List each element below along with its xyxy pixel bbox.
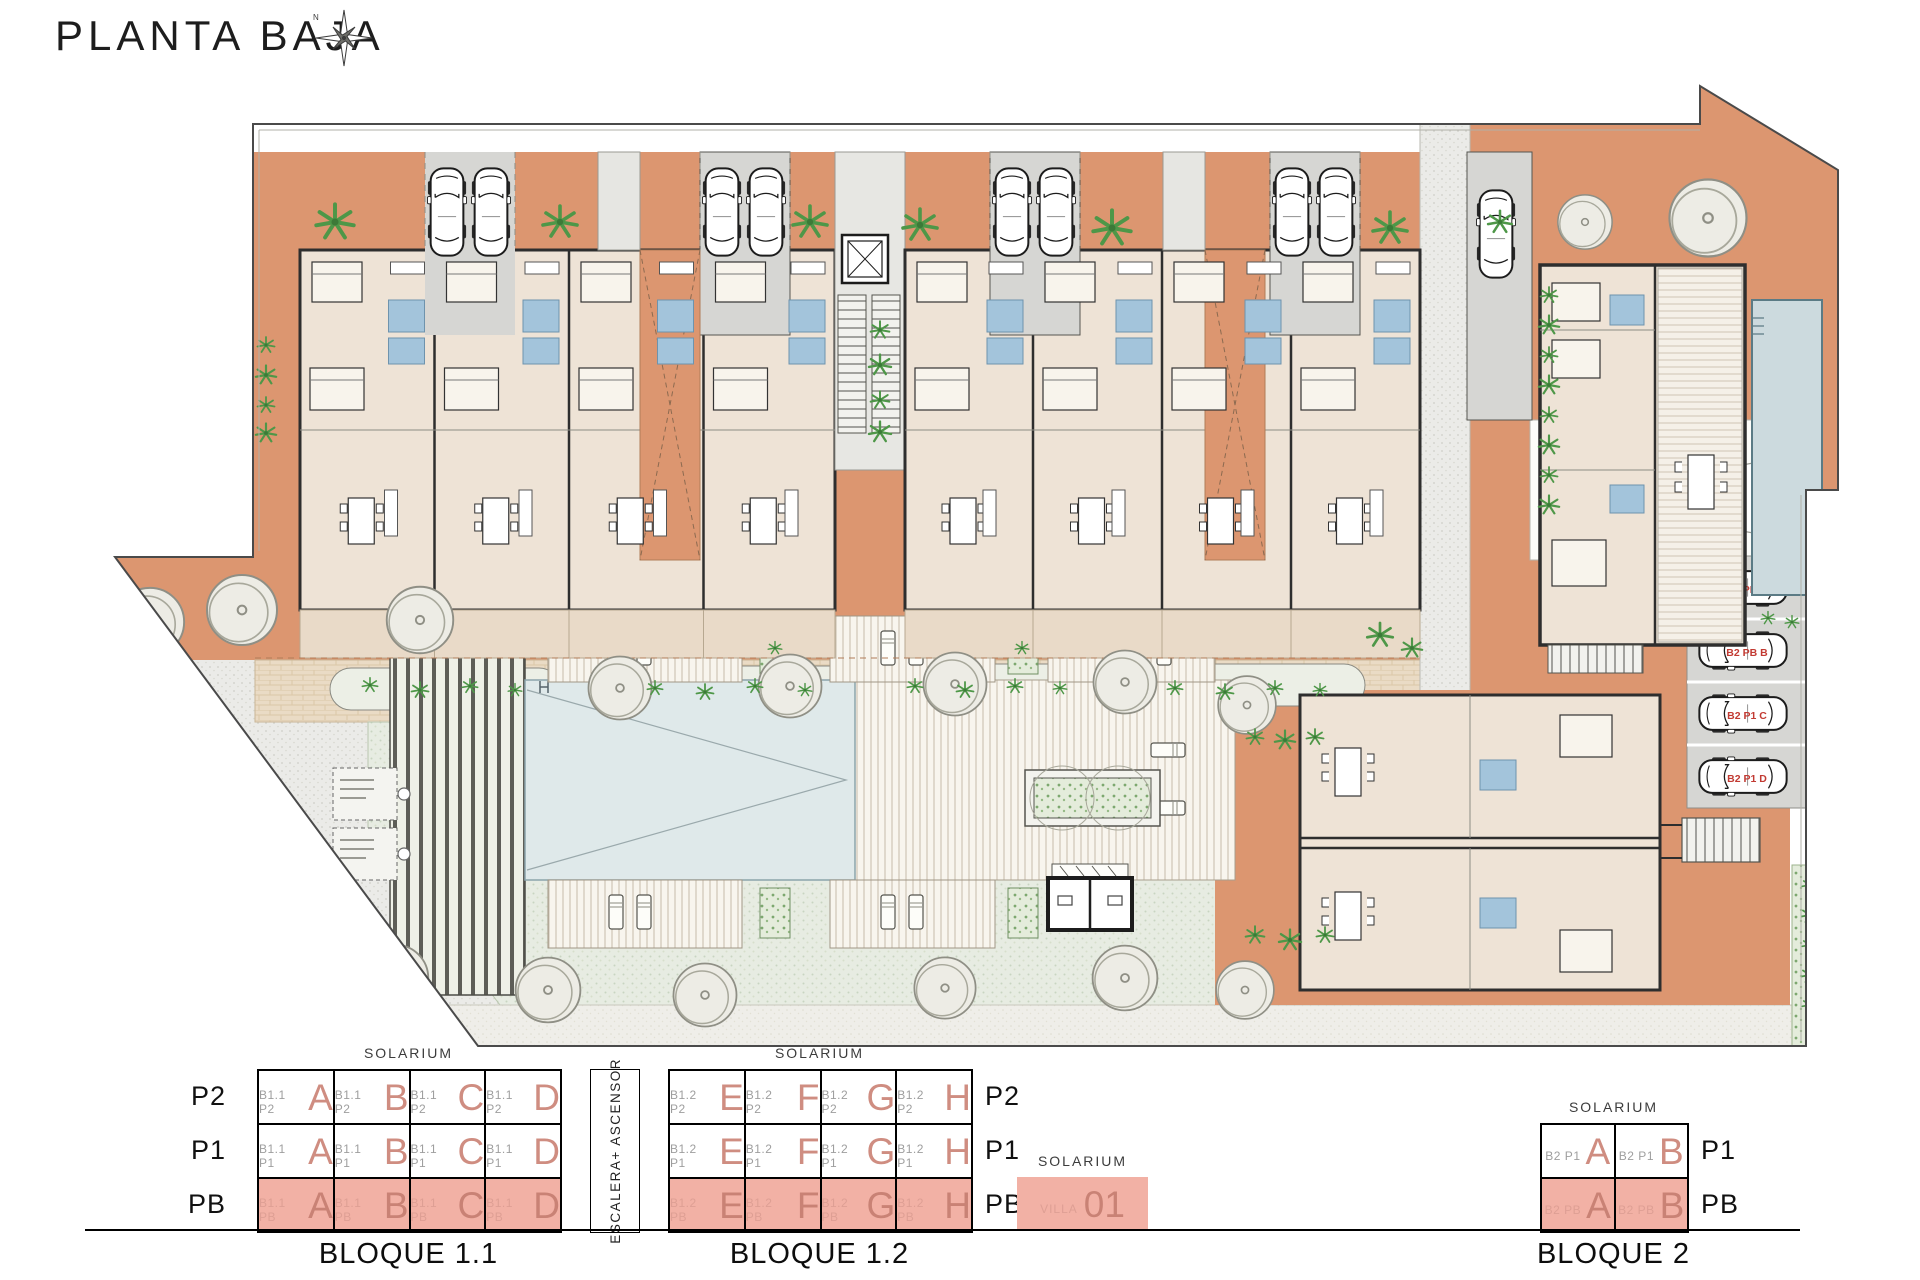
stair-elevator-core <box>835 152 905 470</box>
floor-plan-sheet: B2 PB AB2 PB BB2 P1 CB2 P1 D <box>0 0 1920 1280</box>
legend-unit-cell: B1.2 P1G <box>821 1124 897 1178</box>
elevator-icon <box>842 235 888 283</box>
legend-ground-line <box>85 1229 1800 1231</box>
legend-caption-bloque-2: BLOQUE 2 <box>1480 1238 1747 1271</box>
legend-floor-label: P1 <box>1687 1123 1777 1177</box>
legend-unit-cell: B2 P1B <box>1615 1124 1689 1178</box>
legend-floor-label: P1 <box>971 1123 1061 1177</box>
legend-unit-cell: B1.1 PBB <box>334 1178 410 1232</box>
pergola <box>390 640 525 995</box>
legend-unit-cell: B1.1 P2A <box>258 1070 334 1124</box>
site-plan: B2 PB AB2 PB BB2 P1 CB2 P1 D <box>0 0 1920 1060</box>
stairs-icon <box>838 295 866 433</box>
legend-unit-cell: B2 PBA <box>1541 1178 1615 1232</box>
bloque2-stairs <box>1682 818 1760 862</box>
parking-space-label: B2 P1 D <box>1727 773 1767 785</box>
legend-unit-cell: B1.2 P1H <box>896 1124 972 1178</box>
legend-unit-cell: B1.1 PBC <box>410 1178 486 1232</box>
legend-unit-cell: B1.1 P1B <box>334 1124 410 1178</box>
legend-unit-cell: B1.1 P2D <box>485 1070 561 1124</box>
legend-unit-cell: B1.1 P2C <box>410 1070 486 1124</box>
compass-icon: N <box>308 6 380 70</box>
villa-solarium-label: SOLARIUM <box>1017 1153 1148 1169</box>
legend-unit-cell: B1.1 P1A <box>258 1124 334 1178</box>
legend-unit-cell: B1.2 PBF <box>745 1178 821 1232</box>
compass-north-label: N <box>313 13 319 22</box>
legend-floor-label: P2 <box>160 1069 242 1123</box>
legend-unit-cell: B1.2 P2F <box>745 1070 821 1124</box>
stair-elevator-box: ESCALERA+ ASCENSOR <box>590 1069 640 1233</box>
legend-table-bloque-1-1: B1.1 P2AB1.1 P2BB1.1 P2CB1.1 P2DB1.1 P1A… <box>257 1069 562 1233</box>
legend-unit-cell: B1.1 P2B <box>334 1070 410 1124</box>
legend-unit-cell: B1.1 PBD <box>485 1178 561 1232</box>
legend-caption-bloque-1-1: BLOQUE 1.1 <box>197 1238 620 1271</box>
legend-floor-label: P2 <box>971 1069 1061 1123</box>
legend-table-bloque-1-2: B1.2 P2EB1.2 P2FB1.2 P2GB1.2 P2HB1.2 P1E… <box>668 1069 973 1233</box>
legend-unit-cell: B1.1 P1C <box>410 1124 486 1178</box>
legend-table-bloque-2: B2 P1AB2 P1BB2 PBAB2 PBB <box>1540 1123 1689 1233</box>
legend-floor-label: PB <box>971 1177 1061 1231</box>
parking-space-label: B2 PB B <box>1726 647 1768 659</box>
legend-unit-cell: B2 P1A <box>1541 1124 1615 1178</box>
legend-floor-label: PB <box>1687 1177 1777 1231</box>
legend-caption-bloque-1-2: BLOQUE 1.2 <box>608 1238 1031 1271</box>
legend-unit-cell: B1.2 P2G <box>821 1070 897 1124</box>
legend-floor-label: P1 <box>160 1123 242 1177</box>
legend-unit-cell: B1.2 P1E <box>669 1124 745 1178</box>
legend-unit-cell: B1.1 PBA <box>258 1178 334 1232</box>
pool-planter <box>1025 766 1160 830</box>
legend-unit-cell: B1.2 PBE <box>669 1178 745 1232</box>
villa-pool <box>1752 300 1822 595</box>
solarium-label: SOLARIUM <box>1540 1099 1687 1115</box>
legend-unit-cell: B2 PBB <box>1615 1178 1689 1232</box>
pool-shower-block <box>1048 864 1132 930</box>
legend-floor-label: PB <box>160 1177 242 1231</box>
legend-unit-cell: B1.2 PBH <box>896 1178 972 1232</box>
villa-steps <box>1548 645 1643 673</box>
legend-unit-cell: B1.2 P2E <box>669 1070 745 1124</box>
legend-villa-block: VILLA01 <box>1017 1177 1148 1231</box>
legend-unit-cell: B1.1 P1D <box>485 1124 561 1178</box>
legend-unit-cell: B1.2 P1F <box>745 1124 821 1178</box>
hedge-strip <box>1792 865 1832 1050</box>
parking-space-label: B2 P1 C <box>1727 710 1767 722</box>
legend-unit-cell: B1.2 P2H <box>896 1070 972 1124</box>
legend-unit-cell: B1.2 PBG <box>821 1178 897 1232</box>
